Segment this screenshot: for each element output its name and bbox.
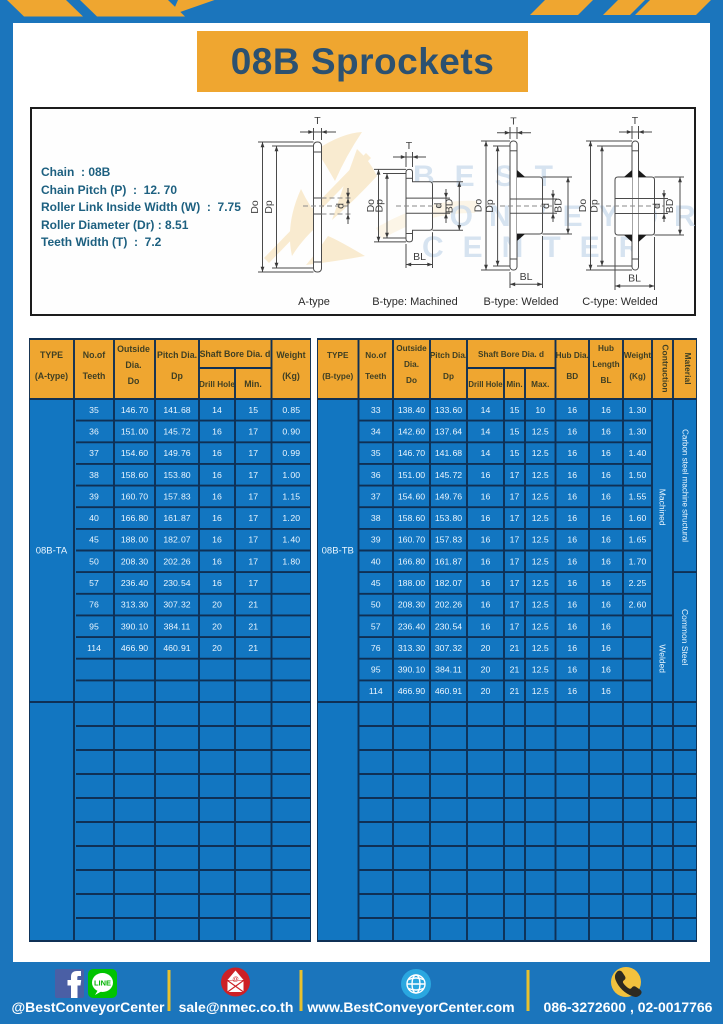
svg-text:Do: Do [128,376,140,386]
svg-text:15: 15 [248,405,258,415]
svg-text:Do: Do [406,376,417,385]
svg-text:141. 68: 141. 68 [435,448,462,458]
svg-text:T: T [314,115,321,127]
svg-text:14: 14 [212,405,222,415]
svg-text:15: 15 [510,448,520,458]
svg-text:16: 16 [567,578,577,588]
svg-text:76: 76 [371,643,381,653]
svg-text:16: 16 [481,470,491,480]
svg-text:17: 17 [510,556,520,566]
svg-text:17: 17 [248,513,258,523]
svg-text:146. 70: 146. 70 [398,448,425,458]
svg-text:57: 57 [89,578,99,588]
svg-text:154. 60: 154. 60 [398,491,425,501]
svg-text:12.5: 12.5 [532,427,549,437]
svg-text:C-type: Welded: C-type: Welded [582,296,658,308]
svg-text:17: 17 [248,491,258,501]
svg-text:Material: Material [683,352,693,384]
svg-text:17: 17 [248,535,258,545]
svg-text:40: 40 [371,556,381,566]
svg-text:34: 34 [371,427,381,437]
svg-text:Max.: Max. [531,380,549,389]
svg-text:Shaft Bore Dia. d: Shaft Bore Dia. d [200,349,271,359]
svg-text:(Kg): (Kg) [629,372,646,381]
svg-text:17: 17 [248,427,258,437]
svg-text:16: 16 [567,491,577,501]
svg-text:Carbon steel machine structur: Carbon steel machine structural [681,429,690,542]
svg-text:12.5: 12.5 [532,643,549,653]
svg-text:466. 90: 466. 90 [121,643,148,653]
svg-text:160. 70: 160. 70 [398,535,425,545]
svg-text:45: 45 [89,535,99,545]
svg-text:16: 16 [601,665,611,675]
svg-text:Weight: Weight [276,350,305,360]
svg-text:17: 17 [510,491,520,501]
svg-text:21: 21 [248,600,258,610]
svg-text:16: 16 [481,578,491,588]
svg-text:236. 40: 236. 40 [398,621,425,631]
svg-text:08B-TB: 08B-TB [322,546,354,557]
svg-text:16: 16 [212,427,222,437]
svg-text:37: 37 [371,491,381,501]
svg-text:Dia.: Dia. [125,360,141,370]
svg-text:166. 80: 166. 80 [398,556,425,566]
svg-text:16: 16 [601,686,611,696]
svg-text:d: d [335,203,347,209]
svg-text:12.5: 12.5 [532,535,549,545]
svg-text:16: 16 [601,643,611,653]
svg-text:20: 20 [481,665,491,675]
svg-text:153. 80: 153. 80 [435,513,462,523]
svg-text:No.of: No.of [83,350,106,360]
svg-text:158. 60: 158. 60 [121,470,148,480]
svg-text:BL: BL [413,251,426,263]
svg-text:151. 00: 151. 00 [121,427,148,437]
svg-text:20: 20 [212,600,222,610]
svg-text:Dp: Dp [484,199,496,213]
svg-text:313. 30: 313. 30 [121,600,148,610]
svg-text:149. 76: 149. 76 [163,448,190,458]
svg-text:12.5: 12.5 [532,556,549,566]
svg-text:16: 16 [567,556,577,566]
svg-text:16: 16 [481,621,491,631]
svg-text:145. 72: 145. 72 [435,470,462,480]
svg-text:20: 20 [481,643,491,653]
svg-text:17: 17 [248,470,258,480]
svg-text:16: 16 [567,665,577,675]
svg-text:TYPE: TYPE [327,351,349,360]
svg-text:Dia.: Dia. [404,360,419,369]
svg-text:1. 50: 1. 50 [629,470,647,480]
svg-text:12.5: 12.5 [532,448,549,458]
svg-text:BL: BL [628,273,641,285]
svg-text:21: 21 [510,665,520,675]
svg-text:2. 60: 2. 60 [629,600,647,610]
svg-text:16: 16 [481,600,491,610]
svg-text:38: 38 [371,513,381,523]
svg-text:14: 14 [481,405,491,415]
svg-text:40: 40 [89,513,99,523]
svg-text:2. 25: 2. 25 [629,578,647,588]
svg-text:188. 00: 188. 00 [121,535,148,545]
svg-text:36: 36 [89,427,99,437]
svg-text:sale@nmec.co.th: sale@nmec.co.th [179,999,294,1015]
svg-text:14: 14 [481,448,491,458]
svg-text:16: 16 [601,491,611,501]
svg-text:T: T [632,115,639,127]
svg-text:36: 36 [371,470,381,480]
svg-text:Do: Do [473,199,485,213]
svg-text:17: 17 [510,600,520,610]
svg-text:Drill Hole: Drill Hole [199,380,235,389]
svg-text:086-3272600 , 02-0017766: 086-3272600 , 02-0017766 [544,999,713,1015]
svg-text:208. 30: 208. 30 [398,600,425,610]
svg-text:Drill Hole: Drill Hole [468,380,503,389]
svg-text:45: 45 [371,578,381,588]
svg-text:182. 07: 182. 07 [435,578,462,588]
svg-text:16: 16 [567,513,577,523]
svg-text:16: 16 [567,470,577,480]
svg-text:Pitch Dia.: Pitch Dia. [157,350,197,360]
svg-text:39: 39 [371,535,381,545]
svg-text:16: 16 [212,513,222,523]
svg-text:d: d [651,203,663,209]
svg-text:16: 16 [212,491,222,501]
svg-text:d: d [540,203,552,209]
svg-text:BD: BD [566,372,578,381]
svg-text:1. 20: 1. 20 [282,513,300,523]
svg-text:208. 30: 208. 30 [121,556,148,566]
svg-text:460. 91: 460. 91 [163,643,190,653]
svg-text:390. 10: 390. 10 [121,621,148,631]
svg-text:Pitch Dia.: Pitch Dia. [430,351,467,360]
svg-text:37: 37 [89,448,99,458]
svg-text:460. 91: 460. 91 [435,686,462,696]
svg-text:138. 40: 138. 40 [398,405,425,415]
svg-text:Outside: Outside [396,344,427,353]
svg-text:12.5: 12.5 [532,578,549,588]
svg-text:12.5: 12.5 [532,665,549,675]
svg-text:390. 10: 390. 10 [398,665,425,675]
svg-text:16: 16 [601,427,611,437]
svg-text:384. 11: 384. 11 [435,665,462,675]
svg-text:20: 20 [212,643,222,653]
svg-text:10: 10 [535,405,545,415]
svg-text:145. 72: 145. 72 [163,427,190,437]
svg-text:Shaft Bore Dia. d: Shaft Bore Dia. d [478,350,544,359]
svg-text:16: 16 [601,513,611,523]
svg-text:153. 80: 153. 80 [163,470,190,480]
svg-text:16: 16 [212,578,222,588]
svg-text:17: 17 [510,535,520,545]
svg-text:35: 35 [89,405,99,415]
svg-text:B-type: Welded: B-type: Welded [483,296,558,308]
svg-text:202. 26: 202. 26 [435,600,462,610]
svg-text:157. 83: 157. 83 [163,491,190,501]
svg-text:LINE: LINE [94,979,111,988]
svg-text:15: 15 [510,405,520,415]
svg-text:466. 90: 466. 90 [398,686,425,696]
svg-text:35: 35 [371,448,381,458]
svg-text:1. 40: 1. 40 [282,535,300,545]
svg-text:161. 87: 161. 87 [163,513,190,523]
svg-text:16: 16 [567,427,577,437]
svg-text:17: 17 [510,513,520,523]
svg-text:16: 16 [567,643,577,653]
svg-text:1. 65: 1. 65 [629,535,647,545]
svg-text:76: 76 [89,600,99,610]
svg-text:BD: BD [444,198,456,213]
svg-text:160. 70: 160. 70 [121,491,148,501]
svg-text:16: 16 [567,448,577,458]
svg-text:1. 60: 1. 60 [629,513,647,523]
svg-text:1. 55: 1. 55 [629,491,647,501]
svg-text:Min.: Min. [244,379,262,389]
svg-text:39: 39 [89,491,99,501]
svg-text:1. 80: 1. 80 [282,556,300,566]
svg-text:1. 30: 1. 30 [629,405,647,415]
svg-text:(A-type): (A-type) [35,371,68,381]
svg-text:12.5: 12.5 [532,513,549,523]
svg-text:149. 76: 149. 76 [435,491,462,501]
svg-text:16: 16 [601,405,611,415]
svg-text:BD: BD [553,198,565,213]
svg-text:1. 30: 1. 30 [629,427,647,437]
svg-text:Contruction: Contruction [661,344,671,392]
svg-text:313. 30: 313. 30 [398,643,425,653]
svg-text:16: 16 [601,600,611,610]
svg-text:T: T [510,116,517,128]
svg-text:Do: Do [577,199,589,213]
svg-text:Welded: Welded [658,644,668,673]
svg-text:16: 16 [481,535,491,545]
svg-text:38: 38 [89,470,99,480]
svg-text:16: 16 [481,491,491,501]
svg-text:08B-TA: 08B-TA [36,546,68,557]
svg-text:Dp: Dp [171,371,183,381]
svg-text:16: 16 [601,470,611,480]
svg-text:www.BestConveyorCenter.com: www.BestConveyorCenter.com [306,999,514,1015]
svg-text:Common Steel: Common Steel [680,609,690,665]
svg-text:16: 16 [212,535,222,545]
svg-text:BL: BL [520,271,533,283]
svg-text:16: 16 [212,556,222,566]
svg-text:1. 00: 1. 00 [282,470,300,480]
svg-text:17: 17 [510,578,520,588]
svg-text:Teeth: Teeth [83,371,106,381]
svg-text:Hub: Hub [598,344,614,353]
svg-text:307. 32: 307. 32 [163,600,190,610]
svg-text:21: 21 [248,643,258,653]
svg-text:202. 26: 202. 26 [163,556,190,566]
svg-text:1. 70: 1. 70 [629,556,647,566]
svg-text:114: 114 [87,643,101,653]
svg-text:Hub Dia.: Hub Dia. [556,351,589,360]
svg-text:142. 60: 142. 60 [398,427,425,437]
svg-text:12.5: 12.5 [532,491,549,501]
svg-text:182. 07: 182. 07 [163,535,190,545]
svg-text:50: 50 [89,556,99,566]
svg-text:57: 57 [371,621,381,631]
svg-text:188. 00: 188. 00 [398,578,425,588]
svg-text:12.5: 12.5 [532,470,549,480]
svg-text:307. 32: 307. 32 [435,643,462,653]
svg-text:146. 70: 146. 70 [121,405,148,415]
svg-text:137. 64: 137. 64 [435,427,462,437]
svg-text:Dp: Dp [443,372,454,381]
svg-text:16: 16 [212,448,222,458]
svg-text:1. 40: 1. 40 [629,448,647,458]
svg-text:114: 114 [369,686,383,696]
svg-text:16: 16 [567,600,577,610]
svg-text:(Kg): (Kg) [282,371,300,381]
svg-text:17: 17 [248,578,258,588]
svg-text:158. 60: 158. 60 [398,513,425,523]
svg-text:No.of: No.of [365,351,386,360]
svg-text:B-type: Machined: B-type: Machined [372,296,458,308]
svg-text:Teeth: Teeth [365,372,386,381]
svg-text:16: 16 [601,535,611,545]
svg-text:17: 17 [510,470,520,480]
svg-text:16: 16 [601,621,611,631]
svg-text:14: 14 [481,427,491,437]
svg-text:166. 80: 166. 80 [121,513,148,523]
svg-text:0. 99: 0. 99 [282,448,300,458]
svg-text:21: 21 [510,686,520,696]
svg-text:16: 16 [601,448,611,458]
svg-text:154. 60: 154. 60 [121,448,148,458]
svg-text:Dp: Dp [589,199,601,213]
svg-text:Length: Length [592,360,619,369]
svg-text:15: 15 [510,427,520,437]
svg-text:0. 85: 0. 85 [282,405,300,415]
svg-text:BL: BL [601,376,612,385]
svg-text:1. 15: 1. 15 [282,491,300,501]
svg-text:17: 17 [248,556,258,566]
svg-text:Dp: Dp [374,199,386,213]
svg-text:33: 33 [371,405,381,415]
svg-text:17: 17 [510,621,520,631]
svg-text:Outside: Outside [117,344,150,354]
svg-text:@: @ [232,976,239,983]
svg-text:Weight: Weight [624,351,651,360]
svg-text:161. 87: 161. 87 [435,556,462,566]
svg-text:A-type: A-type [298,296,330,308]
svg-text:157. 83: 157. 83 [435,535,462,545]
svg-text:17: 17 [248,448,258,458]
svg-text:236. 40: 236. 40 [121,578,148,588]
svg-text:Dp: Dp [263,200,275,214]
svg-text:T: T [406,140,413,152]
svg-text:16: 16 [567,535,577,545]
svg-text:0. 90: 0. 90 [282,427,300,437]
svg-text:21: 21 [248,621,258,631]
svg-text:16: 16 [212,470,222,480]
svg-text:95: 95 [89,621,99,631]
svg-text:16: 16 [601,556,611,566]
svg-text:20: 20 [481,686,491,696]
svg-text:50: 50 [371,600,381,610]
svg-text:20: 20 [212,621,222,631]
svg-text:230. 54: 230. 54 [163,578,190,588]
svg-text:95: 95 [371,665,381,675]
svg-text:12.5: 12.5 [532,621,549,631]
svg-text:Do: Do [249,200,261,214]
svg-text:16: 16 [567,621,577,631]
svg-text:16: 16 [567,405,577,415]
svg-text:12.5: 12.5 [532,686,549,696]
svg-text:BD: BD [664,198,676,213]
svg-text:384. 11: 384. 11 [164,621,191,631]
svg-text:TYPE: TYPE [40,350,63,360]
svg-text:16: 16 [481,556,491,566]
svg-text:CENTER: CENTER [422,231,659,264]
svg-text:151. 00: 151. 00 [398,470,425,480]
svg-text:16: 16 [601,578,611,588]
svg-text:230. 54: 230. 54 [435,621,462,631]
svg-text:21: 21 [510,643,520,653]
svg-text:16: 16 [567,686,577,696]
svg-text:141. 68: 141. 68 [163,405,190,415]
svg-text:(B-type): (B-type) [322,372,353,381]
svg-text:12.5: 12.5 [532,600,549,610]
svg-text:Min.: Min. [506,380,522,389]
svg-text:16: 16 [481,513,491,523]
svg-text:Machined: Machined [658,489,668,526]
svg-text:@BestConveyorCenter: @BestConveyorCenter [12,999,165,1015]
svg-text:133. 60: 133. 60 [435,405,462,415]
